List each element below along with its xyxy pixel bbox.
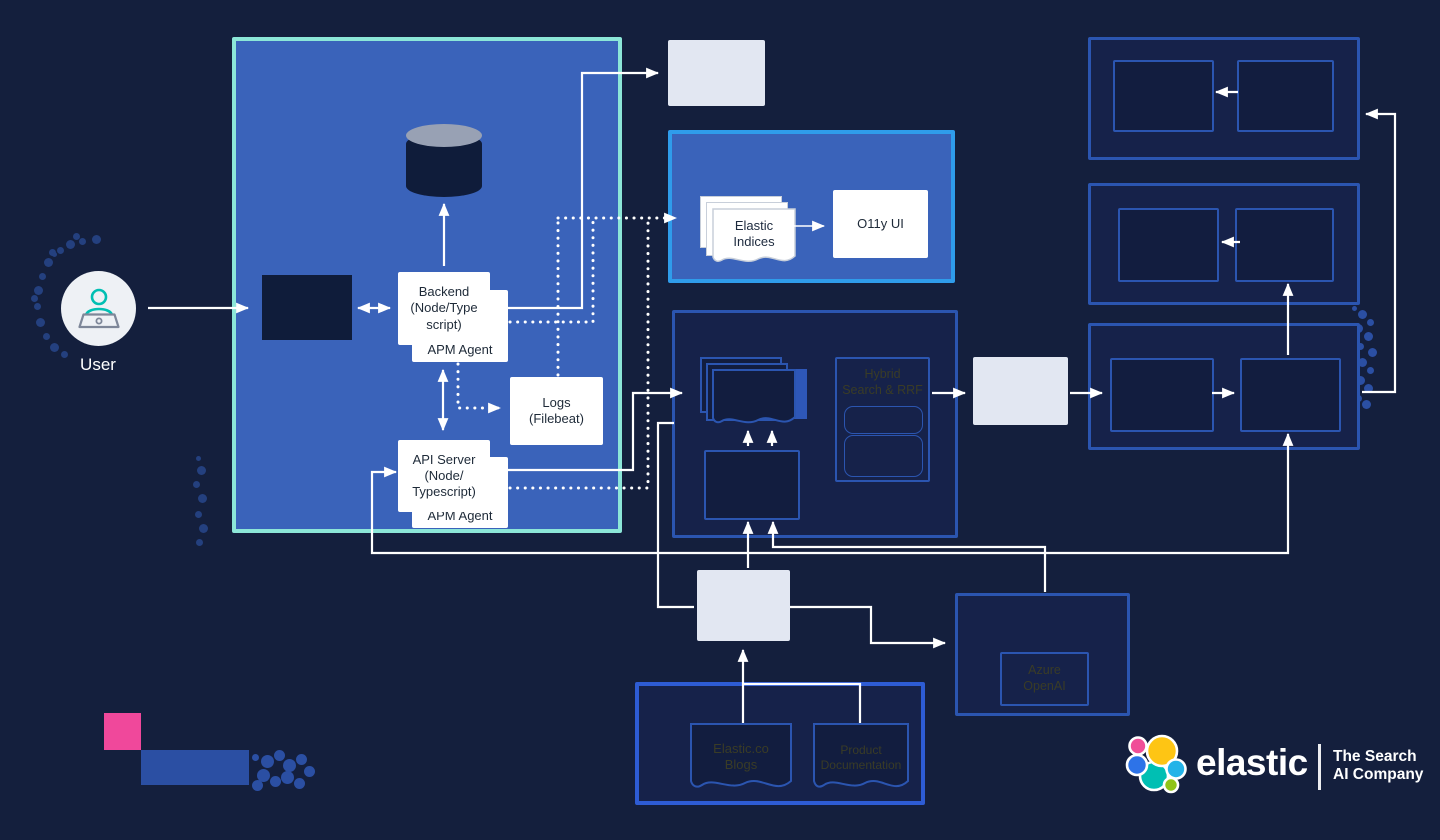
- brand-name: elastic: [1196, 742, 1308, 784]
- o11y-ui-box: O11y UI: [833, 190, 928, 258]
- speckle-decoration-box3: [1352, 306, 1357, 311]
- user-laptop-icon: [75, 287, 123, 331]
- elastic-indices-label: Elastic Indices: [712, 218, 796, 251]
- brand-tagline: The Search AI Company: [1333, 748, 1423, 785]
- user-avatar: [61, 271, 136, 346]
- hybrid-inner-slot-2: [844, 435, 923, 477]
- logs-filebeat-box: Logs (Filebeat): [510, 377, 603, 445]
- azure-openai-inner-box: Azure OpenAI: [1000, 652, 1089, 706]
- pixel-bar-dissolve: [252, 754, 259, 761]
- small-service-box: [704, 450, 800, 520]
- placeholder-box-top: [668, 40, 765, 106]
- workflow-box-1-step-a: [1113, 60, 1214, 132]
- backend-label: Backend (Node/Type script): [410, 284, 477, 333]
- workflow-box-2-step-a: [1118, 208, 1219, 282]
- backend-box: Backend (Node/Type script): [398, 272, 490, 345]
- user-label: User: [58, 355, 138, 375]
- pixel-bar-decoration: [141, 750, 249, 785]
- speckle-decoration-user: [52, 252, 57, 257]
- blogs-doc-label: Elastic.co Blogs: [690, 741, 792, 774]
- hybrid-search-rrf-label: Hybrid Search & RRF: [837, 367, 928, 398]
- pink-square-decoration: [104, 713, 141, 750]
- blogs-doc: Elastic.co Blogs: [690, 723, 792, 800]
- hybrid-inner-slot-1: [844, 406, 923, 434]
- logs-filebeat-label: Logs (Filebeat): [529, 395, 584, 428]
- dark-service-box: [262, 275, 352, 340]
- brand-divider: [1318, 744, 1321, 790]
- o11y-ui-label: O11y UI: [857, 216, 904, 232]
- workflow-box-3-step-a: [1110, 358, 1214, 432]
- product-docs-doc-label: Product Documentation: [813, 743, 909, 773]
- api-server-label: API Server (Node/ Typescript): [412, 452, 476, 501]
- workflow-box-1-step-b: [1237, 60, 1334, 132]
- placeholder-box-bottom: [697, 570, 790, 641]
- workflow-box-2-step-b: [1235, 208, 1334, 282]
- elastic-logo-icon: [1125, 733, 1187, 795]
- placeholder-box-mid: [973, 357, 1068, 425]
- product-docs-doc: Product Documentation: [813, 723, 909, 800]
- hybrid-search-rrf-box: Hybrid Search & RRF: [835, 357, 930, 482]
- speckle-decoration-left: [196, 456, 201, 461]
- api-server-box: API Server (Node/ Typescript): [398, 440, 490, 512]
- database-cylinder-icon: [406, 124, 482, 198]
- elastic-logo: [1125, 733, 1187, 800]
- workflow-box-3-step-b: [1240, 358, 1341, 432]
- architecture-diagram: { "diagram": { "user": { "label": "User"…: [0, 0, 1440, 840]
- azure-openai-label: Azure OpenAI: [1023, 663, 1065, 694]
